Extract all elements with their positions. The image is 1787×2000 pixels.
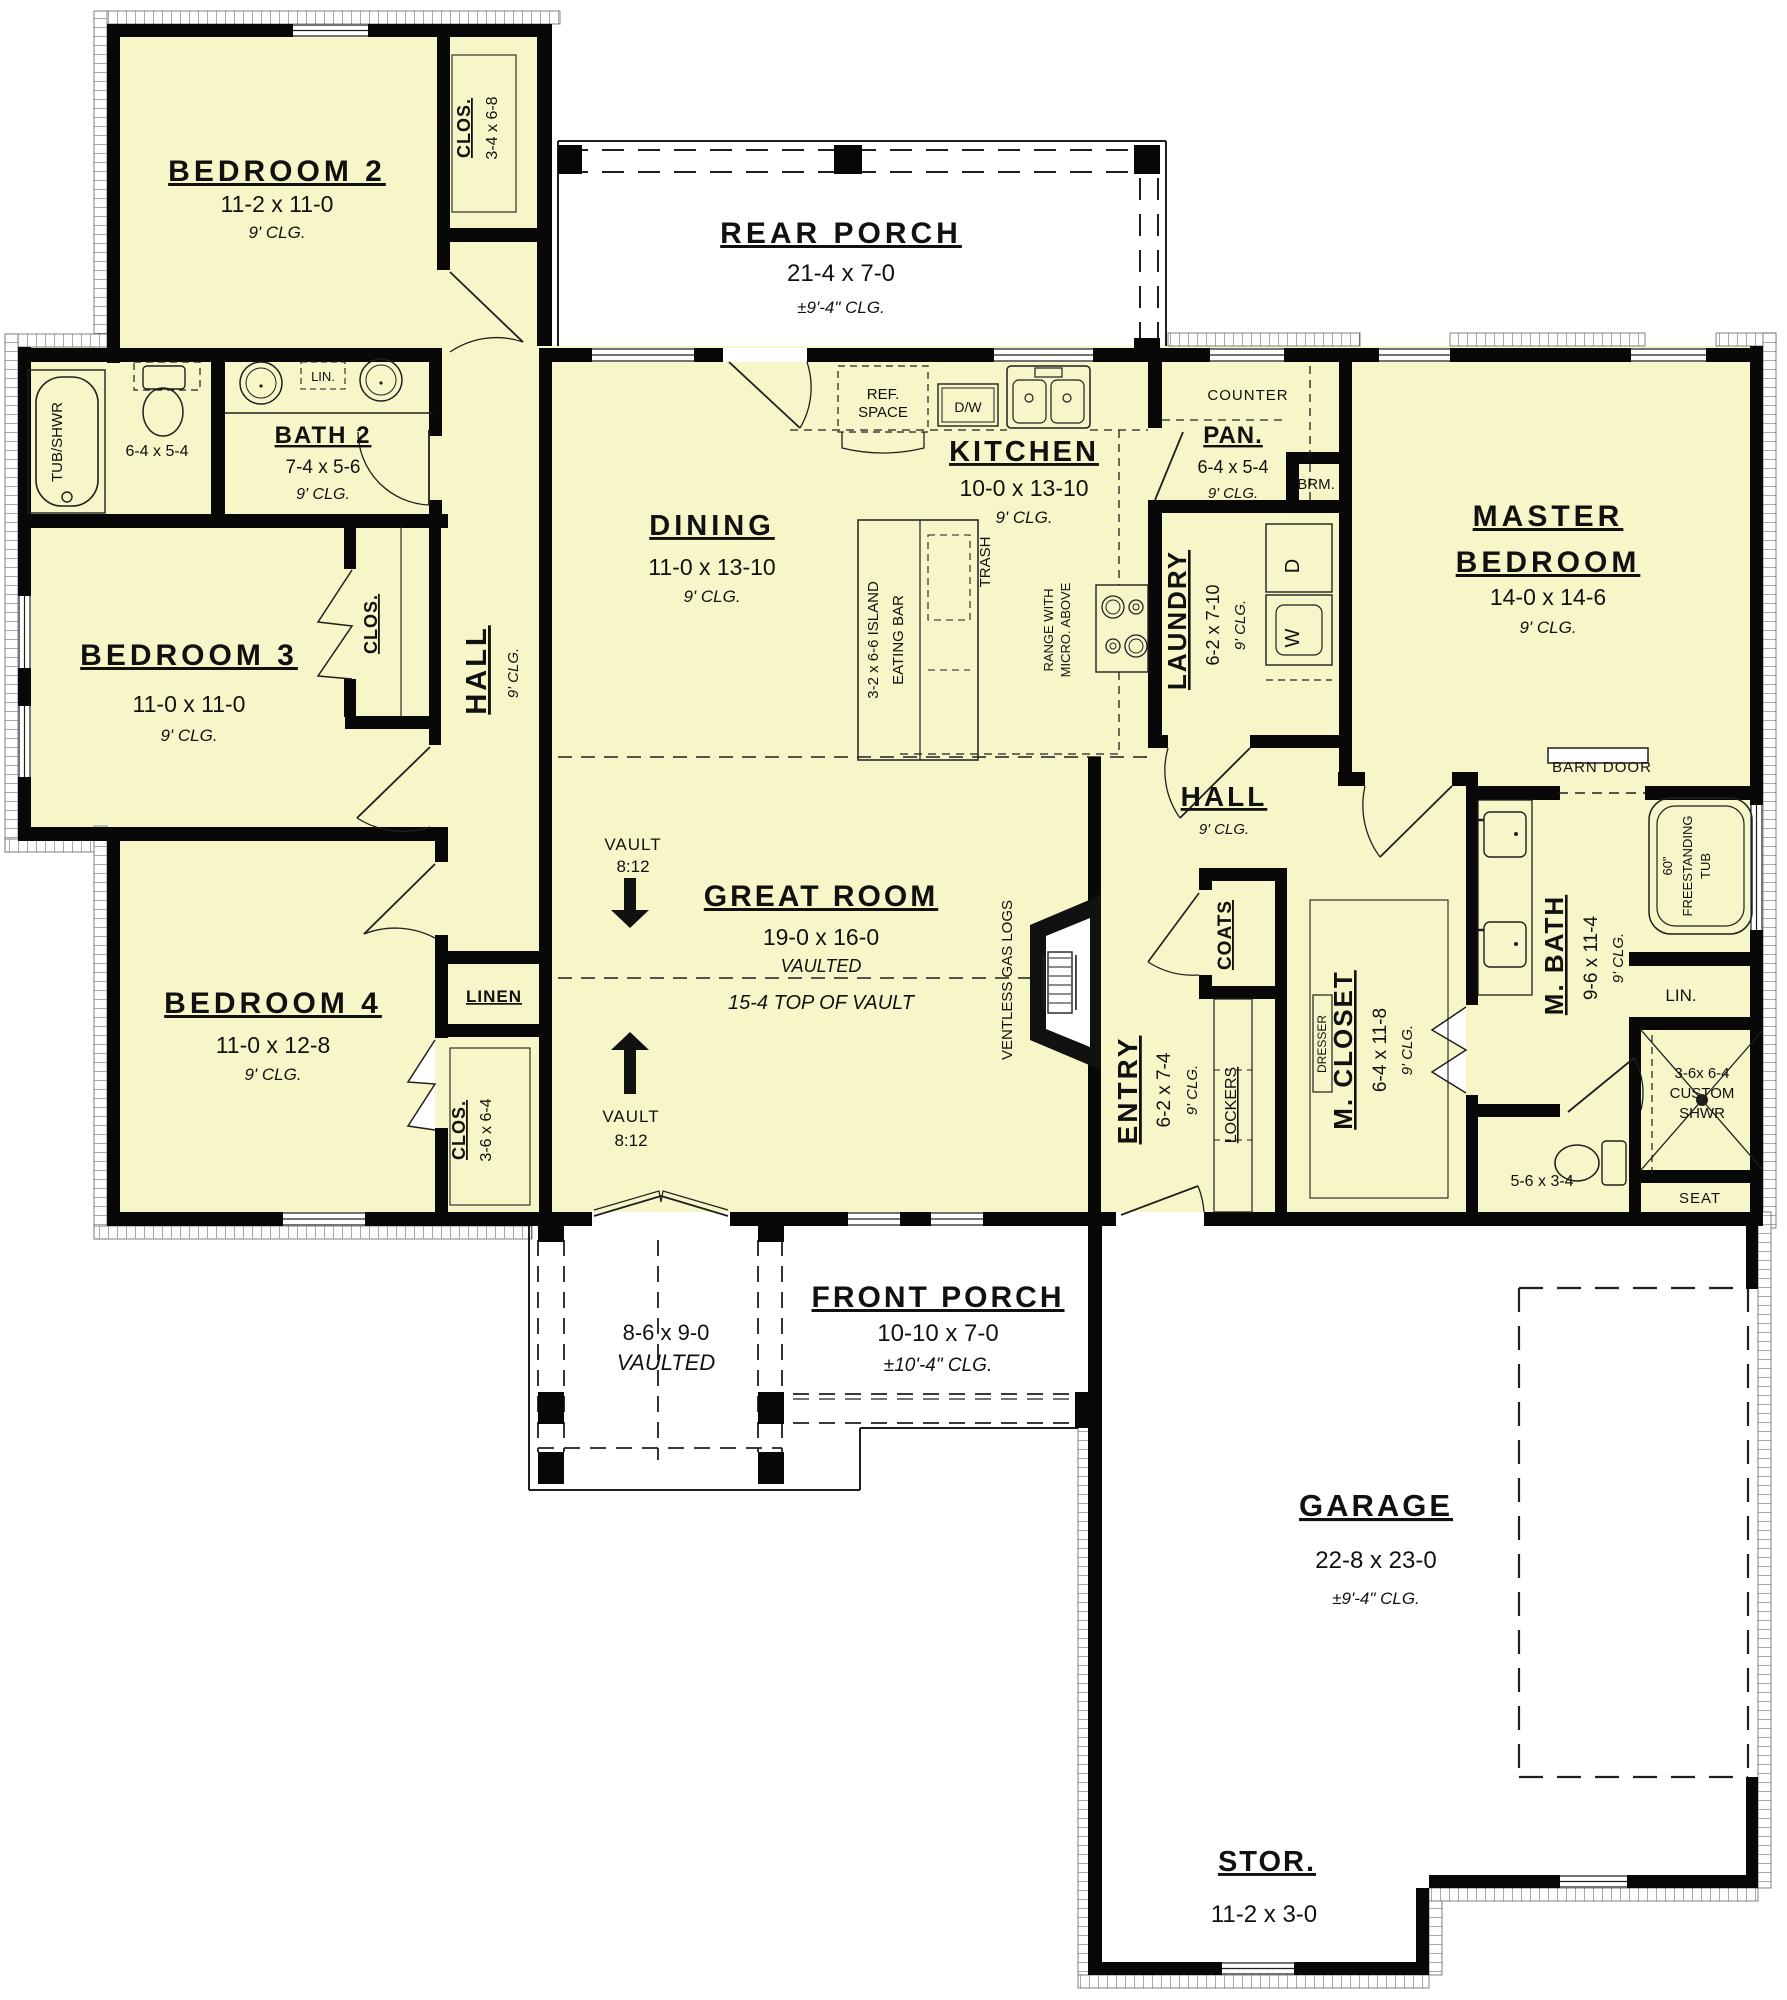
svg-text:BRM.: BRM. [1297, 476, 1335, 493]
svg-text:D: D [1282, 559, 1304, 573]
svg-text:11-0 x 11-0: 11-0 x 11-0 [133, 691, 246, 717]
svg-text:REAR PORCH: REAR PORCH [720, 217, 962, 250]
svg-text:VAULTED: VAULTED [781, 956, 862, 976]
svg-text:CLOS.: CLOS. [454, 98, 474, 158]
svg-text:60": 60" [1660, 856, 1675, 875]
svg-text:SPACE: SPACE [858, 404, 908, 421]
svg-text:VAULT: VAULT [602, 1107, 659, 1126]
svg-text:6-4 x 5-4: 6-4 x 5-4 [125, 443, 188, 460]
svg-text:CUSTOM: CUSTOM [1670, 1085, 1735, 1102]
svg-text:COUNTER: COUNTER [1207, 387, 1288, 404]
svg-text:CLOS.: CLOS. [361, 594, 381, 654]
svg-text:8:12: 8:12 [614, 1131, 647, 1150]
svg-text:6-2 x 7-10: 6-2 x 7-10 [1203, 584, 1223, 665]
svg-text:VAULTED: VAULTED [617, 1350, 716, 1375]
svg-text:9' CLG.: 9' CLG. [1399, 1025, 1416, 1075]
svg-text:9' CLG.: 9' CLG. [1184, 1065, 1201, 1115]
svg-text:PAN.: PAN. [1203, 422, 1263, 449]
svg-text:9-6 x 11-4: 9-6 x 11-4 [1581, 916, 1602, 1001]
svg-text:TUB/SHWR: TUB/SHWR [49, 402, 66, 482]
svg-text:3-2 x 6-6 ISLAND: 3-2 x 6-6 ISLAND [865, 581, 882, 699]
svg-text:15-4 TOP OF VAULT: 15-4 TOP OF VAULT [728, 992, 916, 1014]
svg-text:9' CLG.: 9' CLG. [244, 1065, 301, 1084]
svg-text:14-0 x 14-6: 14-0 x 14-6 [1490, 584, 1606, 610]
svg-text:±10'-4" CLG.: ±10'-4" CLG. [884, 1355, 992, 1376]
svg-text:9' CLG.: 9' CLG. [160, 726, 217, 745]
svg-text:BARN DOOR: BARN DOOR [1552, 759, 1652, 776]
svg-text:9' CLG.: 9' CLG. [995, 508, 1052, 527]
svg-text:19-0 x 16-0: 19-0 x 16-0 [763, 924, 879, 950]
svg-text:11-0 x 13-10: 11-0 x 13-10 [648, 554, 775, 580]
svg-text:22-8 x 23-0: 22-8 x 23-0 [1315, 1547, 1436, 1574]
svg-text:6-2 x 7-4: 6-2 x 7-4 [1154, 1052, 1175, 1127]
svg-text:VENTLESS GAS LOGS: VENTLESS GAS LOGS [999, 900, 1016, 1060]
svg-text:8-6 x 9-0: 8-6 x 9-0 [623, 1320, 710, 1345]
svg-text:M. BATH: M. BATH [1539, 895, 1569, 1015]
svg-text:±9'-4" CLG.: ±9'-4" CLG. [1332, 1589, 1420, 1608]
svg-text:W: W [1282, 628, 1304, 647]
svg-text:3-6x 6-4: 3-6x 6-4 [1674, 1065, 1729, 1082]
svg-text:CLOS.: CLOS. [449, 1100, 469, 1160]
svg-text:6-4 x 5-4: 6-4 x 5-4 [1197, 457, 1268, 477]
svg-text:RANGE WITH: RANGE WITH [1041, 588, 1056, 671]
svg-text:BEDROOM: BEDROOM [1456, 546, 1641, 579]
svg-text:9' CLG.: 9' CLG. [1519, 618, 1576, 637]
svg-text:COATS: COATS [1215, 900, 1236, 970]
svg-text:HALL: HALL [1181, 781, 1268, 812]
svg-text:REF.: REF. [867, 386, 900, 403]
svg-text:FREESTANDING: FREESTANDING [1680, 816, 1695, 917]
svg-text:LIN.: LIN. [311, 369, 335, 384]
svg-text:BEDROOM 2: BEDROOM 2 [168, 155, 386, 188]
svg-text:HALL: HALL [461, 625, 493, 714]
svg-text:8:12: 8:12 [616, 857, 649, 876]
svg-text:MASTER: MASTER [1473, 500, 1624, 533]
svg-text:MICRO. ABOVE: MICRO. ABOVE [1058, 582, 1073, 677]
svg-text:BEDROOM 3: BEDROOM 3 [80, 639, 298, 672]
svg-text:TUB: TUB [1698, 853, 1713, 879]
svg-text:9' CLG.: 9' CLG. [1208, 485, 1258, 502]
svg-text:M. CLOSET: M. CLOSET [1328, 970, 1358, 1130]
svg-text:EATING BAR: EATING BAR [890, 595, 907, 685]
svg-text:GREAT ROOM: GREAT ROOM [704, 880, 938, 913]
svg-text:DINING: DINING [649, 510, 775, 542]
svg-text:SHWR: SHWR [1679, 1105, 1725, 1122]
svg-text:3-6 x 6-4: 3-6 x 6-4 [478, 1098, 495, 1161]
svg-text:9' CLG.: 9' CLG. [505, 648, 522, 698]
svg-text:3-4 x 6-8: 3-4 x 6-8 [484, 96, 501, 159]
svg-text:11-0 x 12-8: 11-0 x 12-8 [216, 1032, 331, 1058]
svg-text:VAULT: VAULT [604, 835, 661, 854]
svg-text:GARAGE: GARAGE [1299, 1488, 1453, 1523]
svg-text:FRONT PORCH: FRONT PORCH [812, 1281, 1065, 1314]
svg-text:11-2 x 3-0: 11-2 x 3-0 [1211, 1901, 1317, 1928]
svg-text:5-6 x 3-4: 5-6 x 3-4 [1510, 1173, 1573, 1190]
svg-text:BATH 2: BATH 2 [275, 422, 372, 449]
svg-text:10-0 x 13-10: 10-0 x 13-10 [959, 475, 1088, 501]
svg-text:10-10 x 7-0: 10-10 x 7-0 [877, 1320, 998, 1347]
svg-text:11-2 x 11-0: 11-2 x 11-0 [221, 191, 334, 217]
svg-text:9' CLG.: 9' CLG. [248, 223, 305, 242]
svg-text:KITCHEN: KITCHEN [949, 436, 1099, 468]
svg-text:9' CLG.: 9' CLG. [1232, 600, 1249, 650]
svg-text:LINEN: LINEN [466, 987, 522, 1006]
svg-text:DRESSER: DRESSER [1315, 1015, 1329, 1073]
svg-text:STOR.: STOR. [1218, 1846, 1316, 1878]
svg-text:BEDROOM 4: BEDROOM 4 [164, 987, 382, 1020]
svg-text:9' CLG.: 9' CLG. [1610, 933, 1627, 983]
svg-text:ENTRY: ENTRY [1112, 1036, 1143, 1145]
svg-text:LOCKERS: LOCKERS [1223, 1067, 1240, 1143]
svg-text:SEAT: SEAT [1679, 1190, 1721, 1207]
svg-text:LAUNDRY: LAUNDRY [1162, 550, 1192, 690]
svg-text:7-4 x 5-6: 7-4 x 5-6 [286, 457, 361, 478]
svg-text:9' CLG.: 9' CLG. [683, 587, 740, 606]
svg-text:TRASH: TRASH [977, 537, 994, 588]
svg-text:9' CLG.: 9' CLG. [1199, 821, 1249, 838]
svg-text:21-4 x 7-0: 21-4 x 7-0 [787, 260, 895, 287]
svg-text:D/W: D/W [954, 399, 982, 415]
svg-text:LIN.: LIN. [1665, 986, 1696, 1005]
svg-text:9' CLG.: 9' CLG. [296, 486, 350, 503]
svg-text:±9'-4" CLG.: ±9'-4" CLG. [797, 298, 885, 317]
svg-text:6-4 x 11-8: 6-4 x 11-8 [1370, 1008, 1391, 1092]
